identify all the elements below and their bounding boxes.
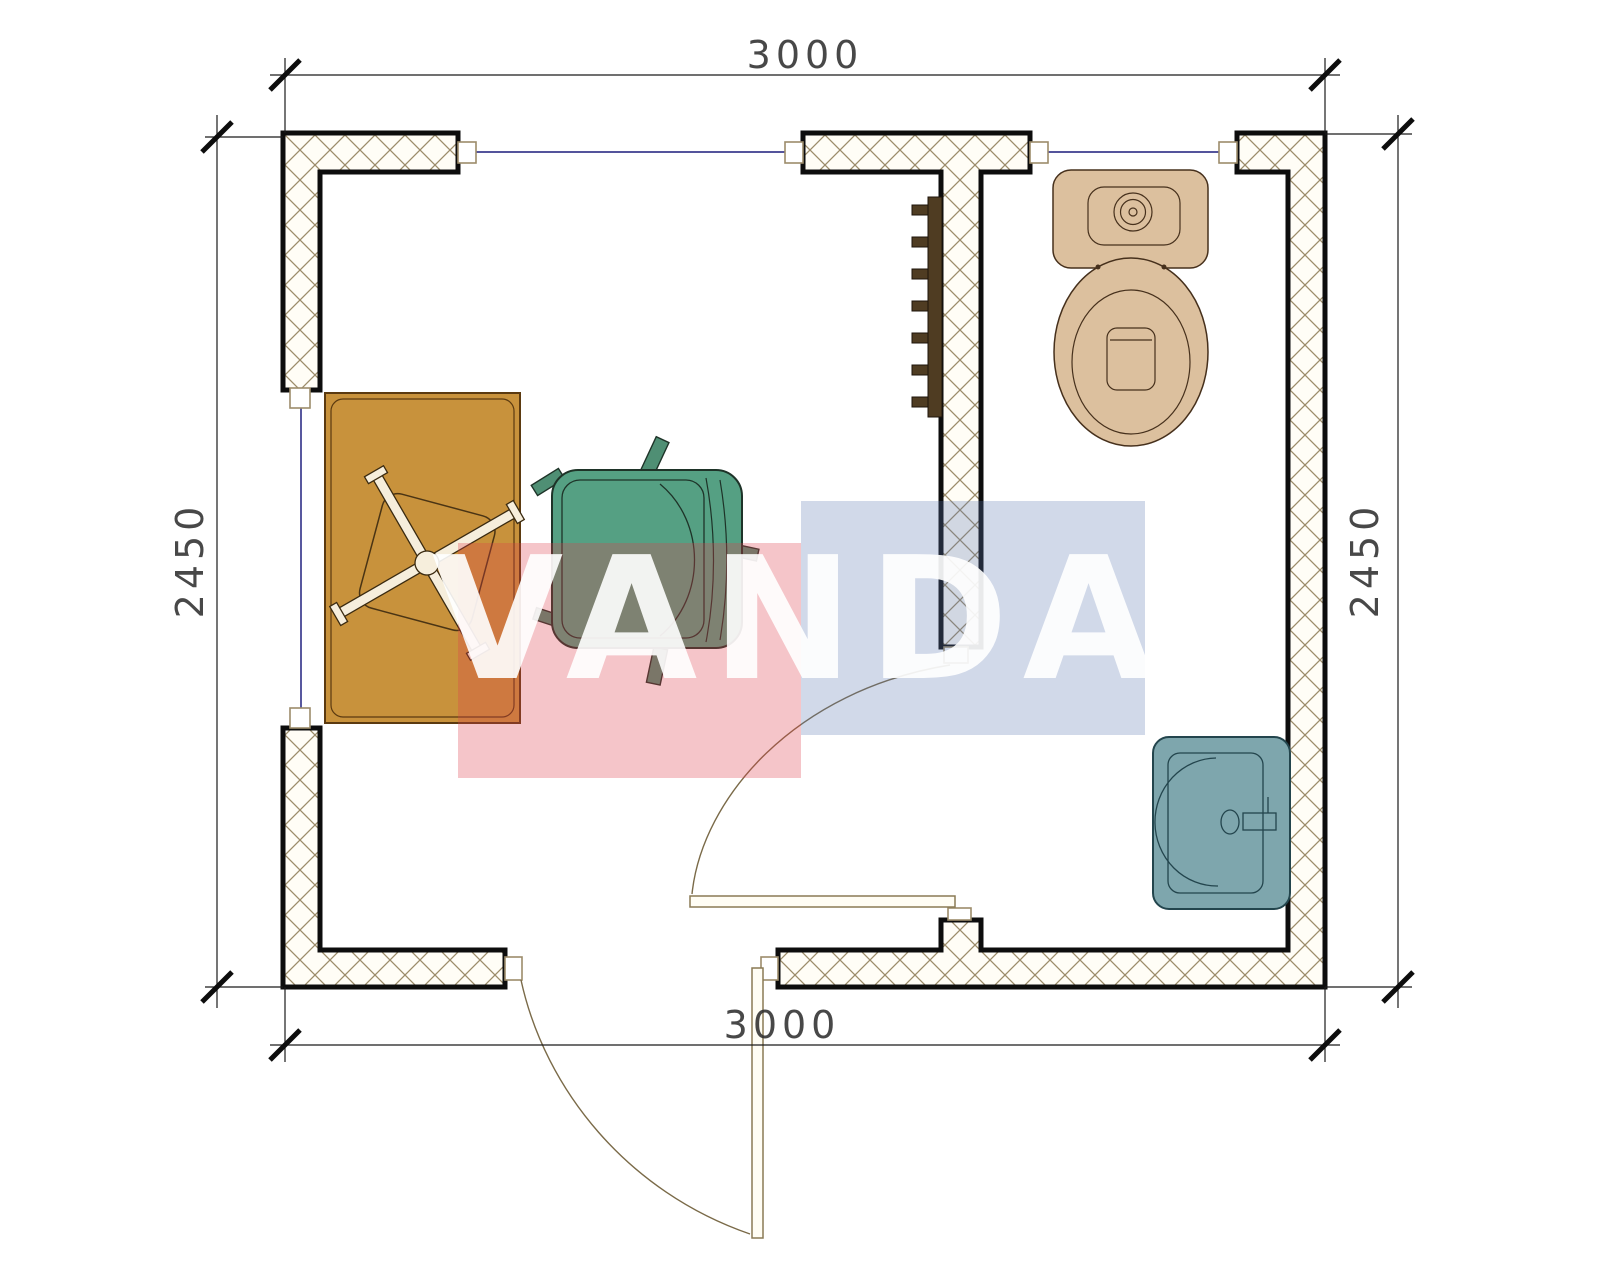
window-cap <box>1030 142 1048 163</box>
dimension-label-left: 2450 <box>168 502 212 619</box>
sink <box>1153 737 1290 909</box>
watermark: VANDA <box>432 501 1169 778</box>
watermark-text: VANDA <box>432 521 1169 719</box>
window-cap <box>785 142 803 163</box>
window-cap <box>290 388 310 408</box>
window-cap <box>290 708 310 728</box>
window-cap <box>1219 142 1237 163</box>
window-cap <box>458 142 476 163</box>
dimension-label-top: 3000 <box>747 33 864 77</box>
wall-top-left <box>283 133 458 390</box>
floor-plan-drawing: 3000 3000 2450 2450 VANDA <box>0 0 1600 1280</box>
exterior-door-arc <box>521 980 750 1234</box>
dimension-label-right: 2450 <box>1343 502 1387 619</box>
door-cap <box>505 957 522 980</box>
door-cap <box>948 908 971 920</box>
dimension-label-bottom: 3000 <box>724 1003 841 1047</box>
floor-plan-canvas: 3000 3000 2450 2450 VANDA <box>0 0 1600 1280</box>
radiator <box>912 197 942 417</box>
interior-door-leaf <box>690 896 955 907</box>
toilet <box>1053 170 1208 446</box>
